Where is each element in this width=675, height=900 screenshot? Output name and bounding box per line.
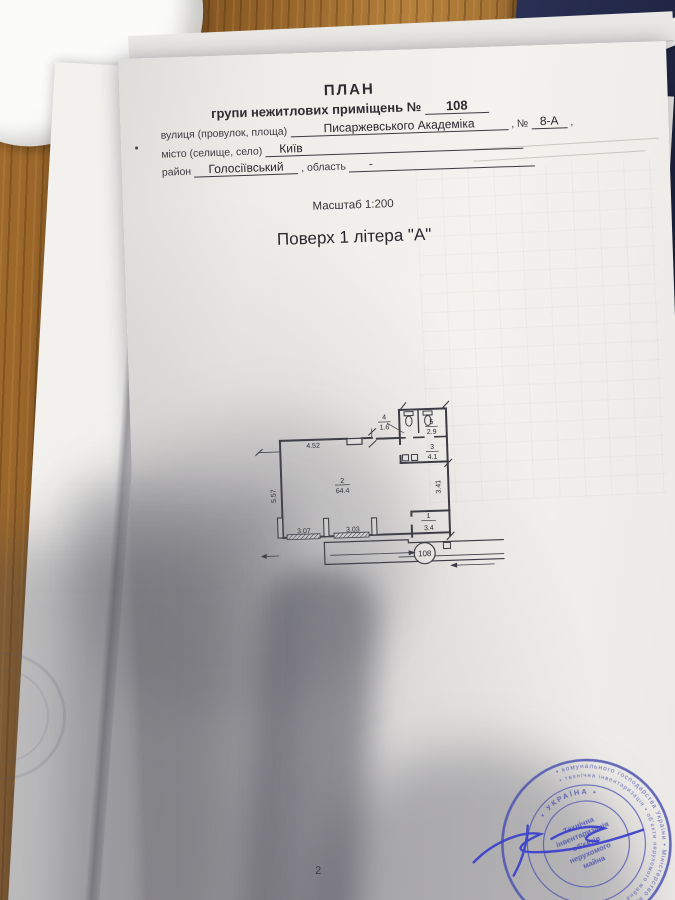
street-value: Писаржевського Академіка: [290, 115, 508, 137]
photo-of-document: ПЛАН групи нежитлових приміщень № 108 ву…: [0, 0, 675, 900]
street-row-tail: ,: [570, 116, 573, 128]
page-number: 2: [315, 865, 322, 877]
room5-area: 2.9: [427, 429, 437, 436]
phone-silhouette-shadow: [235, 565, 382, 900]
premises-number: 108: [425, 97, 489, 115]
room2-area: 64.4: [336, 488, 350, 495]
district-value: Голосіївський: [194, 159, 298, 177]
room3-area: 4.1: [428, 454, 438, 461]
city-label: місто (селище, село): [161, 145, 262, 160]
building-no-label: , №: [511, 118, 528, 131]
floor-plan-drawing: 4.52 5.57 3.41 3.07 3.03 2 64.4 4 1.6 5 …: [254, 396, 510, 604]
dim-left: 5.57: [270, 489, 277, 503]
room2-number: 2: [340, 478, 344, 485]
subtitle-text: групи нежитлових приміщень №: [211, 99, 422, 121]
room4-number: 4: [382, 414, 386, 421]
room4-leader-line: [387, 423, 403, 434]
room4-area: 1.6: [380, 424, 390, 431]
dust-speck: [135, 146, 138, 149]
unit-number: 108: [418, 549, 432, 558]
building-no-value: 8-А: [531, 113, 567, 129]
dim-right: 3.41: [435, 480, 442, 494]
street-label: вулиця (провулок, площа): [161, 126, 288, 142]
scene-shadow-bottom-left: [0, 540, 230, 900]
room5-number: 5: [429, 419, 433, 426]
region-label: , область: [301, 161, 346, 174]
district-label: район: [162, 166, 192, 179]
dim-bottom-1: 3.07: [297, 528, 311, 535]
dim-top: 4.52: [306, 443, 320, 450]
dim-bottom-2: 3.03: [346, 526, 360, 533]
room1-area: 3.4: [424, 525, 434, 532]
room3-number: 3: [430, 444, 434, 451]
room1-number: 1: [426, 513, 430, 520]
